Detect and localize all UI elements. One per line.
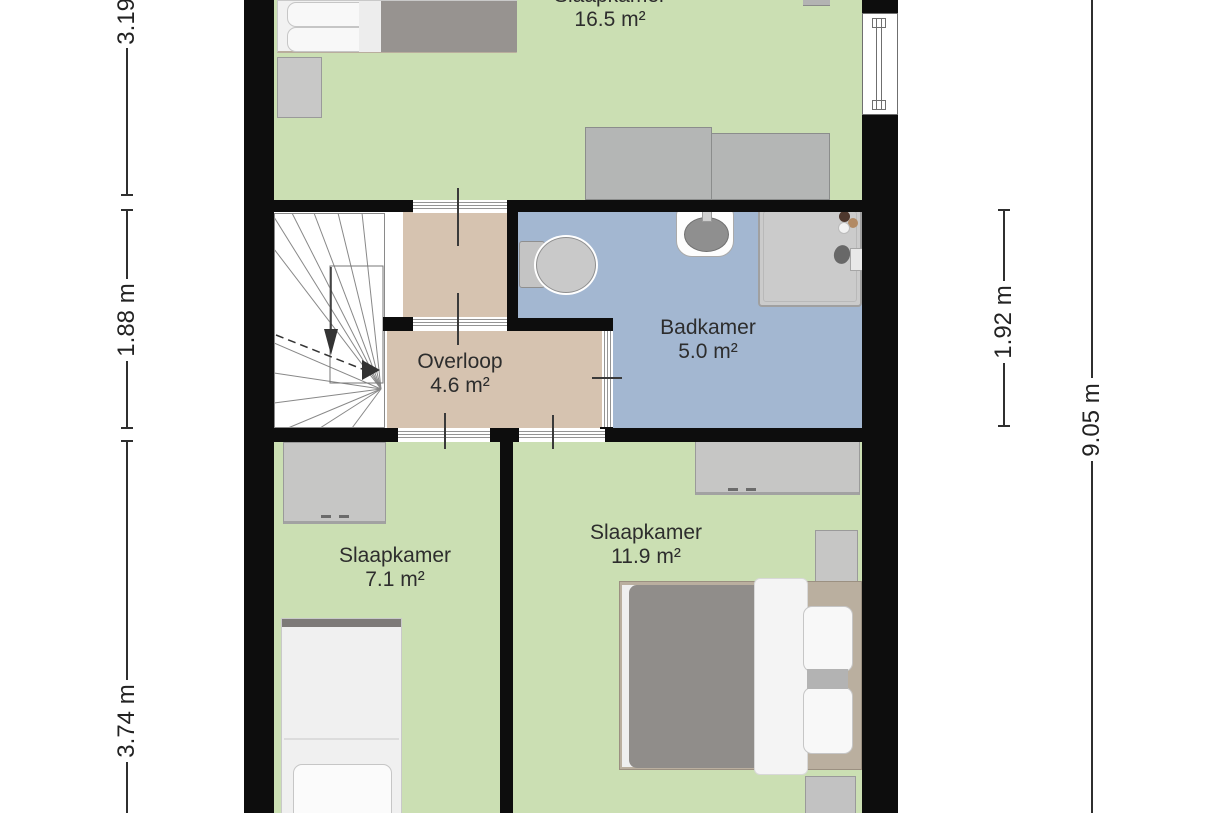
dimension-line	[1091, 0, 1093, 378]
pillow	[287, 2, 369, 27]
dimension-line	[1003, 363, 1005, 426]
sink-basin	[684, 217, 729, 252]
bed	[277, 0, 517, 53]
door-center-tick	[444, 413, 446, 449]
blanket	[381, 1, 517, 52]
nightstand	[815, 530, 858, 588]
wall	[862, 0, 898, 813]
pillow-strap	[807, 669, 848, 689]
window	[862, 13, 898, 115]
door-opening	[602, 331, 613, 427]
staircase	[274, 213, 385, 428]
wall	[490, 428, 519, 442]
door-opening	[413, 317, 507, 331]
dimension-line	[1091, 461, 1093, 813]
dimension-label: 3.74 m	[114, 679, 140, 763]
dimension-line	[126, 48, 128, 194]
door-opening	[519, 429, 605, 442]
pillow	[803, 606, 853, 672]
sink	[676, 207, 734, 257]
dimension-line	[1003, 211, 1005, 281]
room-label-landing: Overloop 4.6 m²	[370, 350, 550, 398]
closet-handle	[728, 488, 738, 491]
window-frame-cap	[872, 100, 886, 110]
dimension-tick	[121, 194, 133, 196]
blanket	[629, 585, 757, 768]
room-name: Badkamer	[618, 316, 798, 340]
room-area: 5.0 m²	[618, 340, 798, 364]
room-area: 4.6 m²	[370, 374, 550, 398]
wall	[244, 428, 398, 442]
room-name: Overloop	[370, 350, 550, 374]
door-center-tick	[457, 188, 459, 246]
room-name: Slaapkamer	[520, 0, 700, 8]
wall	[500, 442, 513, 813]
dimension-line	[126, 361, 128, 427]
single-bed	[281, 618, 402, 813]
toilet-bowl	[536, 237, 596, 293]
dimension-label: 3.19 m	[114, 0, 140, 50]
pillow	[293, 764, 392, 813]
closet	[695, 441, 860, 495]
stair-opening	[386, 212, 403, 317]
headboard	[282, 619, 401, 627]
dimension-line	[126, 762, 128, 813]
wall	[605, 428, 862, 442]
room-area: 11.9 m²	[556, 545, 736, 569]
wardrobe-handle	[321, 515, 331, 518]
door-opening	[413, 200, 507, 213]
floor-plan: Slaapkamer 16.5 m² Badkamer 5.0 m² Overl…	[0, 0, 1220, 813]
wall	[244, 0, 274, 813]
room-floor-vestibule	[403, 212, 507, 317]
door-center-tick	[457, 293, 459, 345]
dimension-label: 1.88 m	[114, 278, 140, 362]
dimension-label: 9.05 m	[1079, 378, 1105, 462]
duvet	[754, 578, 808, 775]
pillow	[803, 687, 853, 754]
desk	[705, 133, 830, 200]
window-frame-cap	[872, 18, 886, 28]
room-name: Slaapkamer	[305, 544, 485, 568]
room-label-bedroom-top: Slaapkamer 16.5 m²	[520, 0, 700, 32]
room-area: 7.1 m²	[305, 568, 485, 592]
wall	[507, 212, 518, 331]
closet-handle	[746, 488, 756, 491]
bed-seam	[284, 738, 399, 740]
room-label-bedroom-right: Slaapkamer 11.9 m²	[556, 521, 736, 569]
pillow	[287, 27, 369, 52]
dresser	[805, 776, 856, 813]
dimension-tick	[998, 425, 1010, 427]
dimension-tick	[121, 427, 133, 429]
desk	[585, 127, 712, 200]
room-name: Slaapkamer	[556, 521, 736, 545]
room-label-bedroom-left: Slaapkamer 7.1 m²	[305, 544, 485, 592]
wall	[383, 317, 413, 331]
door-center-tick	[552, 415, 554, 449]
nightstand	[277, 57, 322, 118]
wall	[507, 200, 862, 212]
room-area: 16.5 m²	[520, 8, 700, 32]
double-bed	[619, 581, 862, 770]
wall	[507, 318, 613, 331]
room-label-bathroom: Badkamer 5.0 m²	[618, 316, 798, 364]
dimension-label: 1.92 m	[991, 280, 1017, 364]
door-center-tick	[592, 377, 622, 379]
duvet	[359, 1, 383, 52]
window-mullion	[876, 18, 882, 110]
dimension-line	[126, 211, 128, 279]
wall	[274, 200, 413, 212]
shower-accessory-icon	[838, 222, 850, 234]
wardrobe-handle	[339, 515, 349, 518]
shower-tray	[758, 206, 862, 307]
wardrobe	[283, 442, 386, 524]
dimension-line	[126, 442, 128, 680]
shelf	[803, 0, 830, 6]
